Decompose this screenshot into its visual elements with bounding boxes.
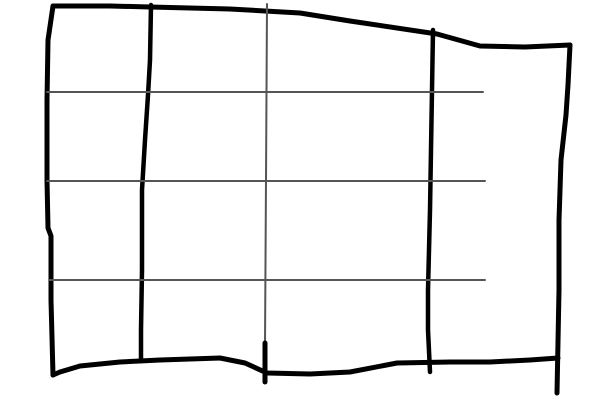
column-line-2-thin	[265, 4, 267, 345]
column-line-1-thick	[141, 5, 151, 361]
column-line-3-thick	[428, 30, 433, 372]
outer-border-right	[557, 45, 570, 393]
sketch-svg	[0, 0, 600, 400]
outer-border-bottom	[53, 358, 558, 375]
outer-border-left	[47, 6, 53, 375]
sketch-page	[0, 0, 600, 400]
outer-border-top	[53, 6, 570, 47]
